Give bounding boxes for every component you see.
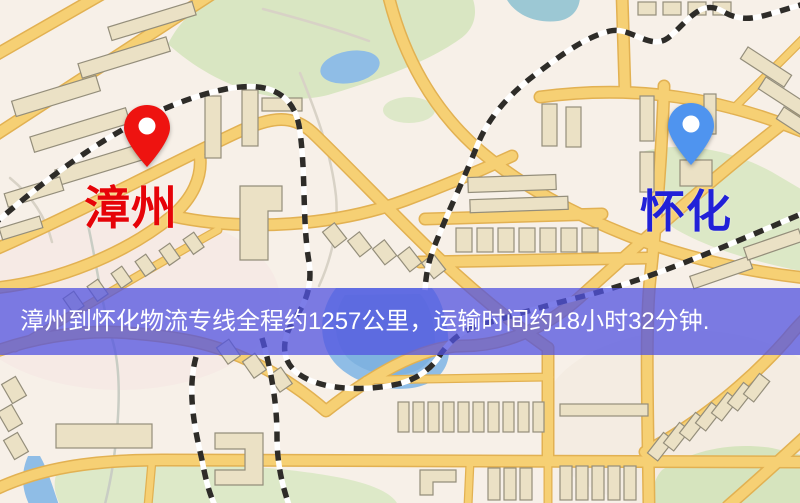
origin-pin-hole <box>139 118 156 135</box>
origin-pin-shape <box>124 105 170 167</box>
origin-label: 漳州 <box>84 172 178 238</box>
origin-pin-icon[interactable] <box>122 103 172 169</box>
map-canvas <box>0 0 800 503</box>
destination-pin-icon[interactable] <box>666 101 716 167</box>
map-screenshot: 漳州 怀化 漳州到怀化物流专线全程约1257公里，运输时间约18小时32分钟. <box>0 0 800 503</box>
destination-label: 怀化 <box>640 175 732 240</box>
route-info-banner: 漳州到怀化物流专线全程约1257公里，运输时间约18小时32分钟. <box>0 288 800 355</box>
route-info-text: 漳州到怀化物流专线全程约1257公里，运输时间约18小时32分钟. <box>20 308 709 335</box>
destination-pin-hole <box>683 116 700 133</box>
destination-pin-shape <box>668 103 714 165</box>
